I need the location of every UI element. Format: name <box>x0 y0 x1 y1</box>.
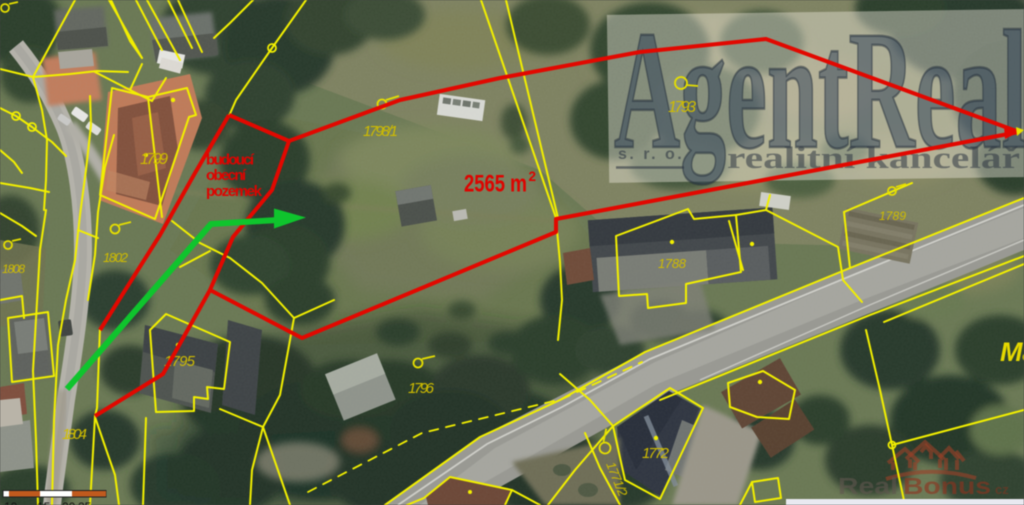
svg-text:obecní: obecní <box>206 167 247 184</box>
svg-text:20: 20 <box>62 500 76 505</box>
svg-text:1788: 1788 <box>658 256 687 271</box>
svg-text:Real: Real <box>838 473 898 499</box>
svg-text:1796: 1796 <box>408 380 435 397</box>
svg-text:1772: 1772 <box>642 445 670 462</box>
svg-text:25: 25 <box>78 500 92 505</box>
svg-text:1799: 1799 <box>140 151 168 168</box>
svg-text:1802: 1802 <box>103 250 129 265</box>
svg-text:10: 10 <box>4 500 18 505</box>
svg-text:pozemek: pozemek <box>206 183 263 200</box>
svg-text:cz: cz <box>995 482 1009 497</box>
svg-text:2565m2: 2565m2 <box>464 169 536 198</box>
svg-text:budoucí: budoucí <box>206 152 255 169</box>
svg-text:s. r. o.: s. r. o. <box>618 146 684 163</box>
svg-text:15: 15 <box>37 500 51 505</box>
svg-text:Bonus: Bonus <box>903 473 991 499</box>
svg-text:1789: 1789 <box>879 209 906 223</box>
svg-text:1804: 1804 <box>62 426 87 443</box>
svg-text:1808: 1808 <box>2 262 25 276</box>
svg-text:1793: 1793 <box>668 99 696 116</box>
svg-text:1798/1: 1798/1 <box>363 123 398 140</box>
svg-text:Ma: Ma <box>1000 337 1024 367</box>
